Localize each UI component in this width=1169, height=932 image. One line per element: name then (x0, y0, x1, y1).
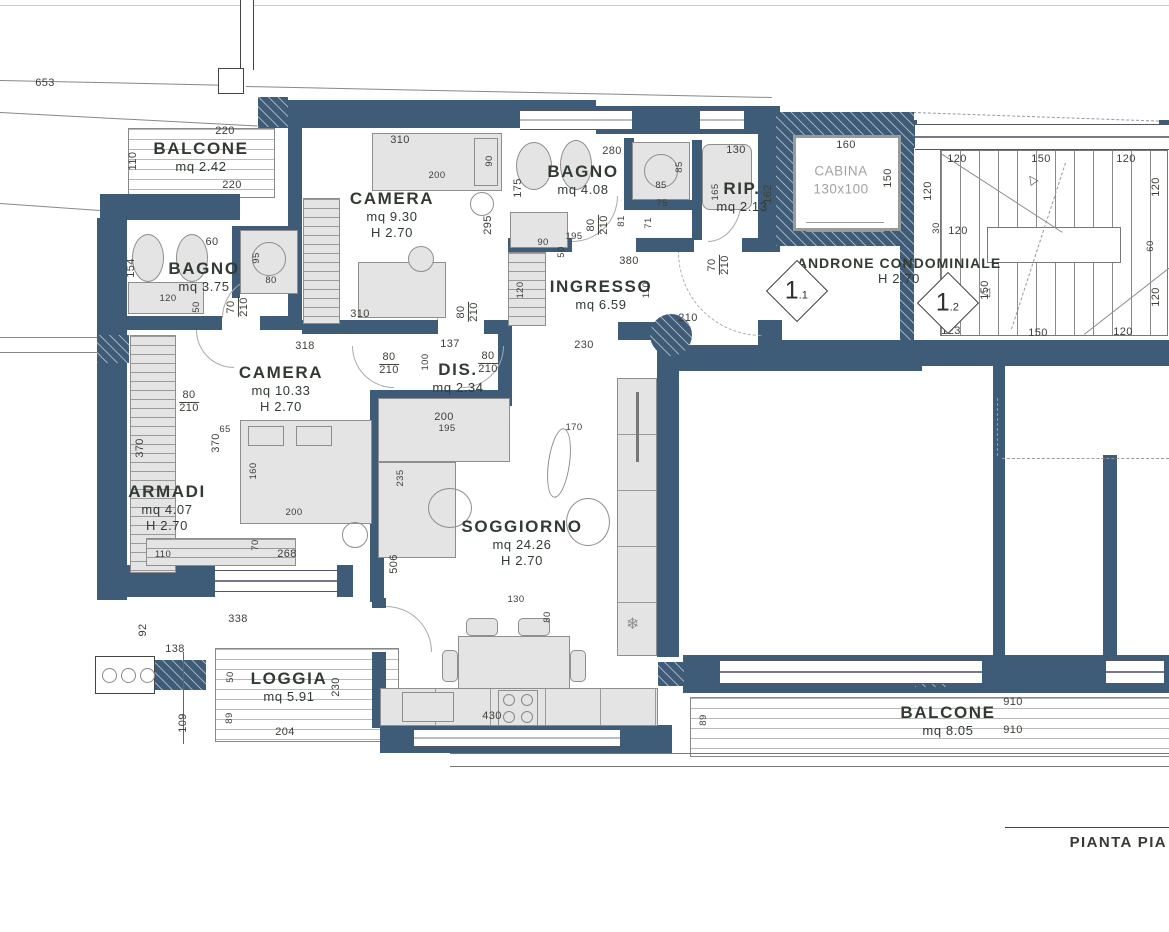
burner (521, 694, 533, 706)
nightstand (342, 522, 368, 548)
dimension-label: 120 (516, 281, 526, 298)
dashed-wall-line (1002, 458, 1169, 459)
floor-plan: ◁ ◁ ❄ (0, 0, 1169, 932)
dimension-label: 80210 (179, 390, 199, 414)
room-label-bagno-secondario: BAGNOmq 3.75 (168, 259, 239, 295)
dimension-label: 80210 (586, 215, 610, 235)
dimension-label: 230 (574, 340, 594, 352)
dimension-label: 85 (675, 161, 685, 172)
room-label-soggiorno: SOGGIORNOmq 24.26H 2.70 (461, 517, 582, 569)
room-label-camera-singola: CAMERAmq 10.33H 2.70 (239, 363, 323, 415)
stairs (940, 150, 1168, 336)
column-hatched (258, 97, 288, 127)
dimension-label: 70210 (226, 297, 250, 317)
dimension-label: 380 (619, 256, 639, 268)
dimension-label: 370 (211, 433, 223, 453)
dimension-label: 65 (219, 425, 230, 435)
external-unit-knob (102, 668, 117, 683)
dimension-label: 50 (557, 246, 567, 257)
kitchen-window (414, 729, 620, 747)
room-label-ingresso: INGRESSOmq 6.59 (550, 277, 653, 313)
site-boundary-line (246, 86, 772, 98)
dimension-label: 120 (947, 154, 967, 166)
dimension-label: 71 (644, 217, 654, 228)
bed-pillow (296, 426, 332, 446)
dimension-label: 120 (1151, 177, 1163, 197)
dimension-label: 60 (205, 237, 218, 249)
site-boundary-line (0, 80, 218, 86)
dimension-label: 30 (932, 222, 942, 233)
dimension-label: 170 (565, 423, 582, 433)
wall (1103, 455, 1117, 667)
dimension-label: 120 (1116, 154, 1136, 166)
window (215, 570, 337, 592)
dimension-label: 81 (617, 215, 627, 226)
elevator-label: CABINA 130x100 (813, 162, 868, 197)
wall (100, 194, 240, 220)
dimension-label: 318 (295, 341, 315, 353)
door-arc (196, 330, 234, 368)
dimension-label: 110 (128, 152, 140, 171)
dimension-label: 430 (482, 711, 502, 723)
burner (521, 711, 533, 723)
wall (692, 140, 702, 240)
dimension-label: 130 (726, 145, 746, 157)
dimension-label: 120 (1113, 327, 1133, 339)
dimension-label: 370 (135, 438, 147, 458)
wall (97, 218, 127, 600)
dimension-label: 506 (389, 554, 401, 574)
kitchen-sink (402, 692, 454, 722)
dimension-label: 80210 (379, 352, 399, 376)
dimension-label: 210 (678, 313, 698, 325)
dimension-label: 89 (225, 712, 235, 723)
elevator-size: 130x100 (813, 180, 868, 198)
dimension-label: 80210 (456, 302, 480, 322)
window (720, 660, 982, 684)
dimension-label: 338 (228, 614, 248, 626)
dimension-label: 60 (1146, 240, 1156, 251)
dimension-label: 90 (485, 155, 495, 166)
dimension-label: 130 (507, 595, 524, 605)
external-unit-knob (140, 668, 155, 683)
door-arc (386, 606, 432, 652)
window (1106, 660, 1164, 684)
dining-table (458, 636, 570, 694)
elevator-name: CABINA (813, 162, 868, 180)
dimension-label: 220 (222, 180, 242, 192)
stair-wall-hatched (900, 150, 914, 340)
dimension-label: 160 (249, 462, 259, 479)
dimension-label: 280 (602, 146, 622, 158)
chair (442, 650, 458, 682)
dimension-label: 85 (655, 181, 666, 191)
column-hatched (658, 662, 684, 686)
dimension-label: 310 (350, 309, 370, 321)
chair (466, 618, 498, 636)
wardrobe (303, 198, 340, 324)
elevator-doors (806, 222, 884, 232)
dimension-label: 268 (277, 549, 297, 561)
dimension-label: 160 (836, 140, 856, 152)
dimension-label: 100 (421, 353, 431, 370)
adjacent-wall-line (0, 352, 100, 353)
wall (935, 340, 1169, 366)
column-hatched (97, 335, 129, 363)
dimension-label: 195 (438, 424, 455, 434)
dimension-label: 310 (390, 135, 410, 147)
room-label-loggia: LOGGIAmq 5.91 (251, 669, 328, 705)
dimension-label: 137 (440, 339, 460, 351)
window-band (915, 124, 1169, 150)
dimension-label: 70 (251, 539, 261, 550)
window (700, 110, 744, 130)
entry-cabinet (508, 252, 546, 326)
external-unit-knob (121, 668, 136, 683)
dimension-label: 200 (285, 508, 302, 518)
room-label-androne: ANDRONE CONDOMINIALEH 2.70 (797, 255, 1001, 287)
wall (337, 565, 353, 597)
dimension-label: 89 (699, 714, 709, 725)
dimension-label: 95 (252, 252, 262, 263)
dimension-label: 150 (883, 168, 895, 188)
dimension-label: 92 (138, 623, 150, 636)
room-label-balcone-nord: BALCONEmq 2.42 (153, 139, 248, 175)
cabinet-handle (636, 392, 639, 462)
dimension-label: 120 (1151, 287, 1163, 307)
dimension-label: 150 (1031, 154, 1051, 166)
dimension-label: 220 (215, 126, 235, 138)
room-label-disimpegno: DIS.mq 2.34 (432, 360, 483, 396)
desk (358, 262, 446, 318)
wall (100, 316, 222, 330)
dimension-label: 70210 (707, 255, 731, 275)
dimension-label: 80 (265, 276, 276, 286)
sheet-title: PIANTA PIA (1070, 834, 1167, 851)
dimension-label: 235 (396, 469, 406, 486)
chair (570, 650, 586, 682)
desk-chair (408, 246, 434, 272)
room-label-bagno-principale: BAGNOmq 4.08 (547, 162, 618, 198)
dimension-label: 138 (165, 644, 185, 656)
dimension-label: 154 (126, 258, 138, 278)
dashed-wall-line (997, 398, 998, 456)
dimension-label: 910 (1003, 725, 1023, 737)
titleblock-line (1005, 827, 1169, 828)
dimension-label: 200 (428, 171, 445, 181)
freezer-snowflake-icon: ❄ (626, 614, 639, 634)
wall (993, 363, 1005, 655)
sheet-top-line (0, 5, 1169, 6)
lower-terrace-sill (450, 753, 1169, 767)
dimension-label: 910 (1003, 697, 1023, 709)
standing-pet (543, 427, 575, 499)
dimension-label: 204 (275, 727, 295, 739)
dimension-label: 653 (35, 78, 55, 90)
window (520, 110, 632, 130)
wall (660, 345, 922, 371)
dimension-label: 120 (159, 294, 176, 304)
dimension-label: 195 (565, 232, 582, 242)
dimension-label: 110 (155, 550, 171, 560)
dimension-label: 120 (948, 226, 968, 238)
roof-dashed-line (913, 112, 1169, 122)
dimension-label: 150 (1028, 328, 1048, 340)
dimension-label: 50 (226, 671, 236, 682)
boundary-marker-square (218, 68, 244, 94)
wall (260, 316, 302, 330)
room-label-armadi: ARMADImq 4.07H 2.70 (128, 482, 206, 534)
dimension-label: 230 (331, 677, 343, 697)
stair-landing (987, 227, 1121, 263)
dimension-label: 175 (513, 178, 525, 198)
room-label-camera-doppia: CAMERAmq 9.30H 2.70 (350, 189, 434, 241)
bed-pillow (248, 426, 284, 446)
dimension-label: 295 (483, 215, 495, 235)
adjacent-wall-line (0, 337, 100, 338)
wall (636, 238, 694, 252)
dimension-label: 80 (543, 611, 553, 622)
column-hatched (152, 660, 206, 690)
burner (503, 711, 515, 723)
dimension-label: 90 (537, 238, 548, 248)
boundary-pole (240, 0, 254, 70)
dimension-label: 120 (923, 181, 935, 201)
dimension-label: 109 (178, 713, 190, 733)
nightstand (470, 192, 494, 216)
dimension-label: 50 (192, 301, 202, 312)
room-label-balcone-sud: BALCONEmq 8.05 (900, 703, 995, 739)
wall (372, 598, 386, 608)
dimension-label: 75 (656, 199, 667, 209)
wall (657, 345, 679, 657)
room-label-ripostiglio: RIP.mq 2.13 (716, 179, 767, 215)
burner (503, 694, 515, 706)
site-boundary-line (0, 203, 100, 211)
